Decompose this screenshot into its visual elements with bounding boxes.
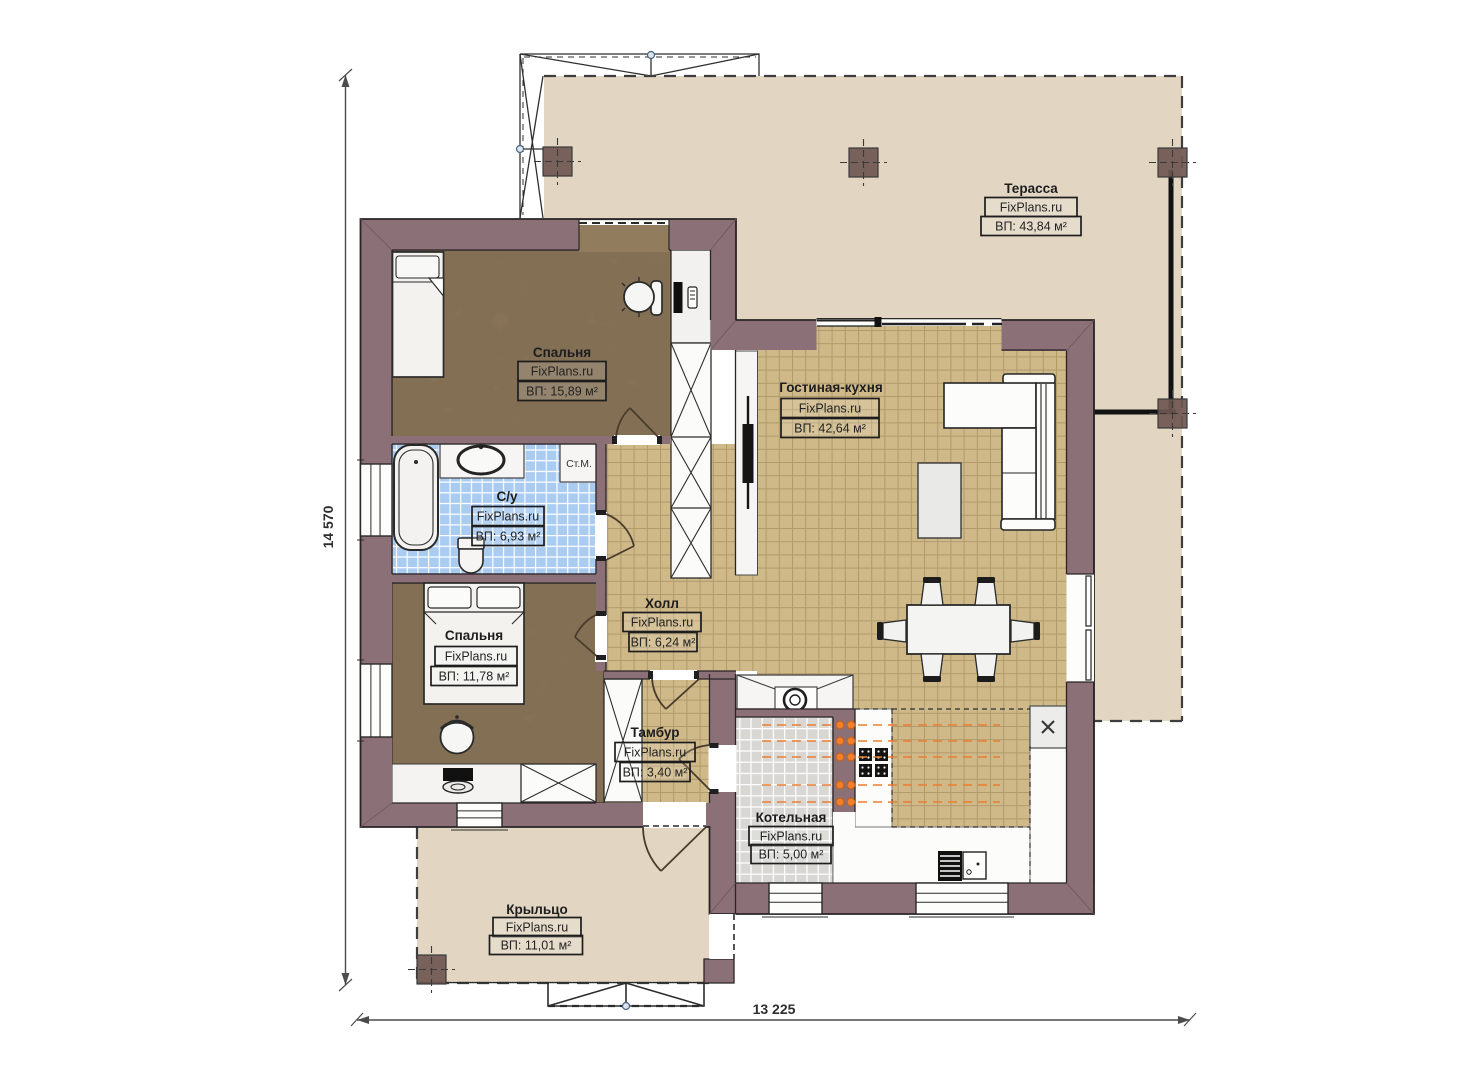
svg-text:Холл: Холл: [645, 596, 679, 611]
svg-text:FixPlans.ru: FixPlans.ru: [1000, 201, 1063, 215]
svg-text:FixPlans.ru: FixPlans.ru: [506, 921, 569, 935]
svg-text:14 570: 14 570: [320, 505, 336, 548]
svg-text:ВП: 15,89 м²: ВП: 15,89 м²: [526, 385, 598, 399]
svg-text:Спальня: Спальня: [533, 345, 591, 360]
svg-text:Гостиная-кухня: Гостиная-кухня: [779, 380, 882, 395]
svg-text:FixPlans.ru: FixPlans.ru: [477, 510, 540, 524]
svg-text:ВП: 11,78 м²: ВП: 11,78 м²: [439, 670, 510, 684]
svg-text:Котельная: Котельная: [756, 810, 827, 825]
svg-text:FixPlans.ru: FixPlans.ru: [799, 402, 862, 416]
svg-text:Крыльцо: Крыльцо: [506, 902, 567, 917]
svg-text:Ст.М.: Ст.М.: [566, 458, 592, 470]
svg-text:FixPlans.ru: FixPlans.ru: [631, 616, 694, 630]
svg-text:Спальня: Спальня: [445, 628, 503, 643]
svg-text:ВП: 5,00 м²: ВП: 5,00 м²: [759, 848, 824, 862]
svg-text:13 225: 13 225: [753, 1001, 796, 1017]
svg-text:ВП: 6,93 м²: ВП: 6,93 м²: [476, 530, 541, 544]
svg-text:FixPlans.ru: FixPlans.ru: [624, 746, 687, 760]
svg-text:FixPlans.ru: FixPlans.ru: [531, 365, 594, 379]
svg-text:ВП: 6,24 м²: ВП: 6,24 м²: [631, 636, 696, 650]
svg-text:ВП: 42,64 м²: ВП: 42,64 м²: [794, 422, 866, 436]
svg-text:Терасса: Терасса: [1004, 181, 1058, 196]
svg-text:ВП: 11,01 м²: ВП: 11,01 м²: [501, 939, 572, 953]
svg-text:FixPlans.ru: FixPlans.ru: [760, 830, 823, 844]
svg-text:С/у: С/у: [496, 489, 518, 504]
svg-text:ВП: 43,84 м²: ВП: 43,84 м²: [995, 220, 1067, 234]
svg-text:ВП: 3,40 м²: ВП: 3,40 м²: [623, 766, 688, 780]
svg-text:FixPlans.ru: FixPlans.ru: [445, 650, 508, 664]
svg-text:Тамбур: Тамбур: [631, 725, 680, 740]
